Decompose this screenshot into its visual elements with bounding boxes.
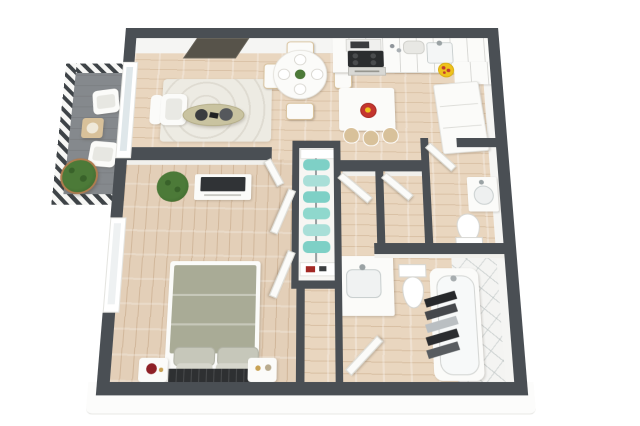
decor-tray <box>219 108 233 121</box>
place-setting <box>294 83 306 94</box>
shoes-red <box>306 266 315 272</box>
tv <box>200 177 245 191</box>
wall-bedroom-hall <box>296 289 305 382</box>
bread-box <box>403 41 425 55</box>
fruit-bowl <box>360 103 377 118</box>
closet-shelf <box>300 149 334 159</box>
hanging-shirt <box>303 159 330 170</box>
decor-gold <box>255 365 260 370</box>
dining-chair <box>286 103 314 120</box>
hanging-shirt <box>303 208 330 220</box>
bar-stool <box>363 130 380 146</box>
hanging-shirt <box>303 191 330 203</box>
burner <box>353 60 359 65</box>
faucet-icon <box>359 264 365 270</box>
dining-table <box>273 50 328 99</box>
media-console <box>194 174 252 200</box>
hanging-shirt <box>303 224 330 236</box>
sunflower-decal <box>439 64 454 77</box>
nightstand <box>247 358 276 382</box>
hanging-shirt <box>303 175 330 186</box>
shoes-dark <box>319 266 326 271</box>
floor-plan-3d <box>0 0 640 426</box>
oven-handle <box>355 70 380 72</box>
cooktop <box>348 51 384 67</box>
canister <box>390 44 395 48</box>
outer-wall-bottom <box>96 382 528 395</box>
powder-basin <box>473 186 494 205</box>
cube-side-table <box>81 118 104 138</box>
kitchen-sink <box>426 42 454 63</box>
closet-inner-face <box>343 171 376 176</box>
bar-stool <box>343 127 360 143</box>
apartment-plan <box>96 28 528 395</box>
powder-sink <box>467 177 499 211</box>
door-glass <box>120 67 133 151</box>
duvet <box>169 265 256 353</box>
red-table-lamp <box>146 363 157 374</box>
wall-closets-top <box>341 160 430 171</box>
wall-living-bedroom <box>127 147 272 160</box>
closet-shelf <box>300 262 336 276</box>
place-setting <box>278 69 290 80</box>
oven-front <box>348 67 386 76</box>
bathroom-vanity <box>338 256 395 316</box>
faucet-icon <box>450 275 457 281</box>
microwave <box>346 39 382 52</box>
hanging-shirt <box>303 241 331 253</box>
wall-face-bedroom <box>127 160 272 165</box>
place-setting <box>311 69 323 80</box>
wardrobe-interior <box>299 148 335 280</box>
bar-stool <box>382 127 399 143</box>
wall-face-bath <box>374 254 504 258</box>
lounge-chair <box>92 88 119 115</box>
wall-powder-top <box>456 138 496 147</box>
burner <box>370 60 376 65</box>
place-setting <box>294 54 306 65</box>
faucet-icon <box>479 180 484 185</box>
nightstand <box>138 358 168 382</box>
decor-book <box>209 112 219 119</box>
burner <box>370 53 376 58</box>
balcony-railing-bottom <box>51 194 117 205</box>
wall-bathroom-top <box>374 243 504 254</box>
soundbar <box>204 194 241 196</box>
wall-bathroom-left <box>335 254 344 382</box>
centerpiece-plant <box>295 70 305 80</box>
decor-item <box>265 364 272 371</box>
canister <box>396 48 401 52</box>
window-glass <box>107 223 121 304</box>
bed-frame <box>163 261 260 384</box>
microwave-window <box>350 41 369 48</box>
kitchen-island <box>339 88 396 131</box>
outer-wall-top <box>125 28 499 38</box>
decor-gold <box>159 368 164 372</box>
armchair-seat <box>160 94 188 125</box>
burner <box>352 53 358 58</box>
faucet-icon <box>436 41 442 46</box>
wardrobe-wall-left <box>291 141 299 289</box>
vanity-sink <box>346 269 382 298</box>
decor-tray <box>195 109 208 121</box>
